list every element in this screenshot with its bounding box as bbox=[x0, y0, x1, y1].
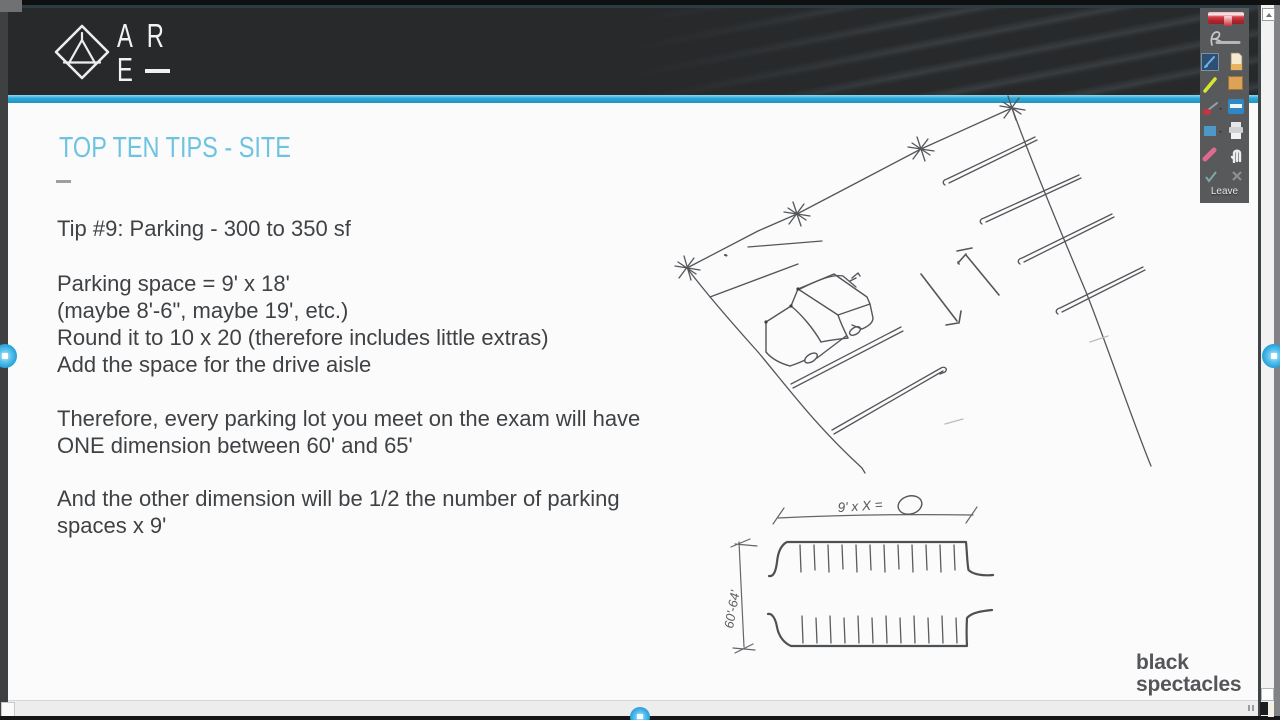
svg-text:9' x X =: 9' x X = bbox=[837, 497, 883, 515]
svg-text:60'-64': 60'-64' bbox=[721, 589, 742, 630]
